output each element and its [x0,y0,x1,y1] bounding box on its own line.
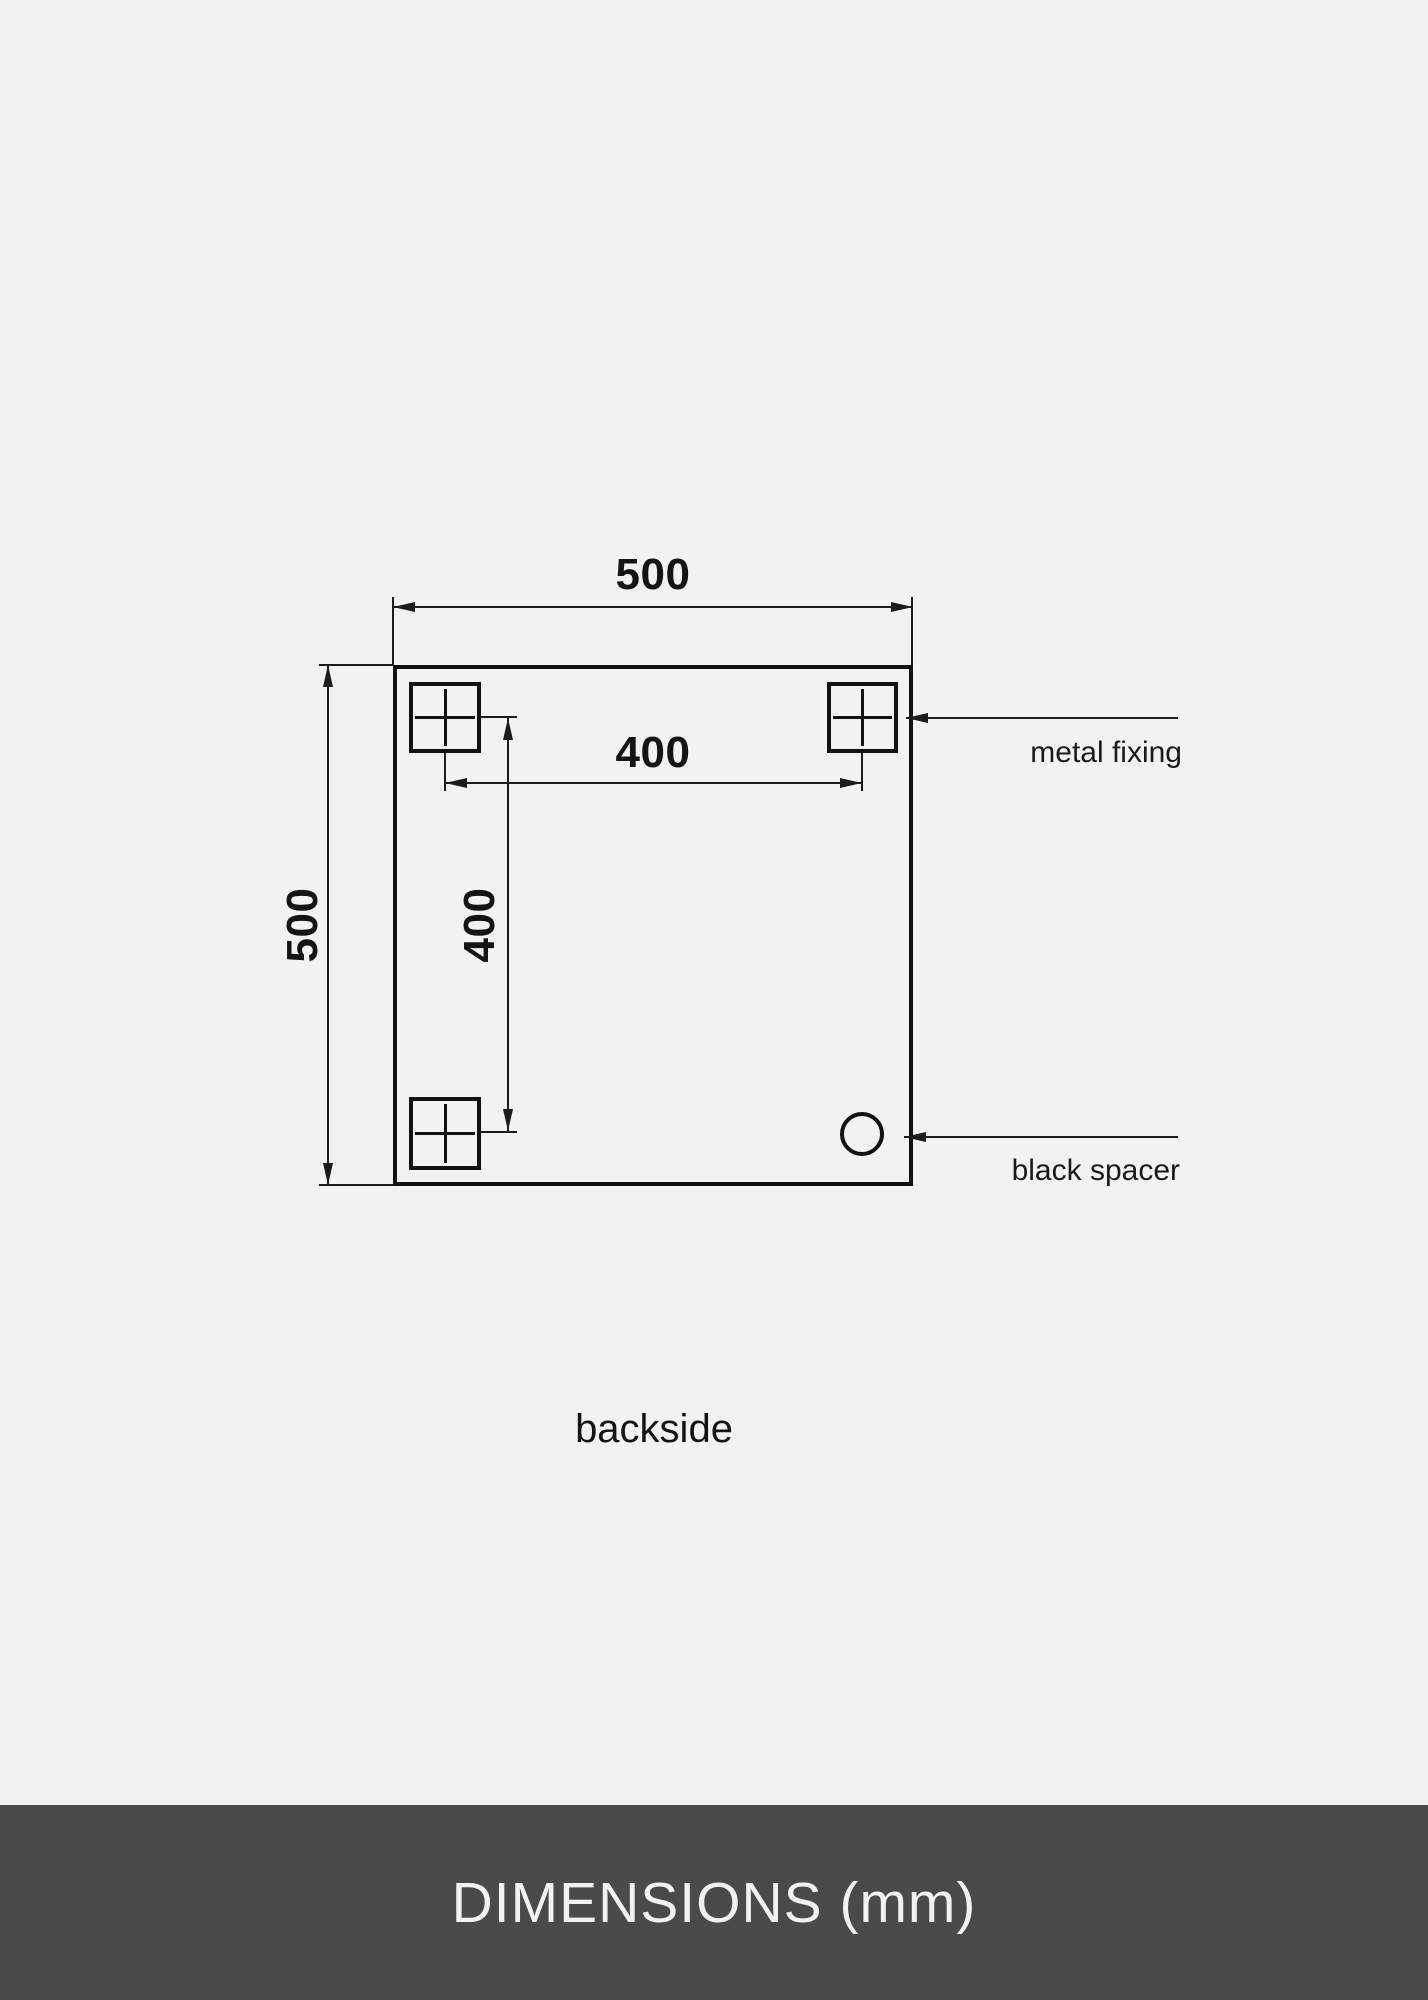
metal-fixing-label: metal fixing [950,736,1182,770]
black-spacer-circle [840,1112,884,1156]
dimension-drawing-page: 500 500 400 400 metal fixing black space… [0,0,1428,2000]
metal-fixing-leader-line [906,717,1178,719]
arrowhead-left-icon [393,602,415,612]
dim-fixing-spacing-horizontal-label: 400 [553,729,753,777]
arrowhead-left-icon [906,713,928,723]
arrowhead-right-icon [840,778,862,788]
drawing-caption: backside [504,1407,804,1451]
footer-bar: DIMENSIONS (mm) [0,1805,1428,2000]
dim-horizontal-400-line [445,782,862,784]
fixing-cross-horizontal [415,1132,475,1135]
dim-overall-height-label: 500 [279,825,327,1025]
dim-vertical-400-line [507,718,509,1132]
black-spacer-label: black spacer [948,1154,1180,1188]
arrowhead-down-icon [323,1163,333,1185]
metal-fixing-top-left [409,682,481,753]
dim-overall-width-label: 500 [553,551,753,599]
metal-fixing-top-right [827,682,898,753]
dim-left-line [327,665,329,1185]
metal-fixing-bottom-left [409,1097,481,1170]
arrowhead-down-icon [503,1109,513,1131]
dim-top-line [393,606,913,608]
fixing-cross-horizontal [415,716,475,719]
fixing-cross-horizontal [833,716,892,719]
arrowhead-up-icon [503,718,513,740]
dim-fixing-spacing-vertical-label: 400 [456,825,504,1025]
arrowhead-left-icon [445,778,467,788]
black-spacer-leader-line [904,1136,1178,1138]
arrowhead-right-icon [891,602,913,612]
dim-vertical-400-extension-bottom [481,1131,517,1133]
arrowhead-left-icon [904,1132,926,1142]
footer-title: DIMENSIONS (mm) [452,1870,977,1936]
arrowhead-up-icon [323,665,333,687]
